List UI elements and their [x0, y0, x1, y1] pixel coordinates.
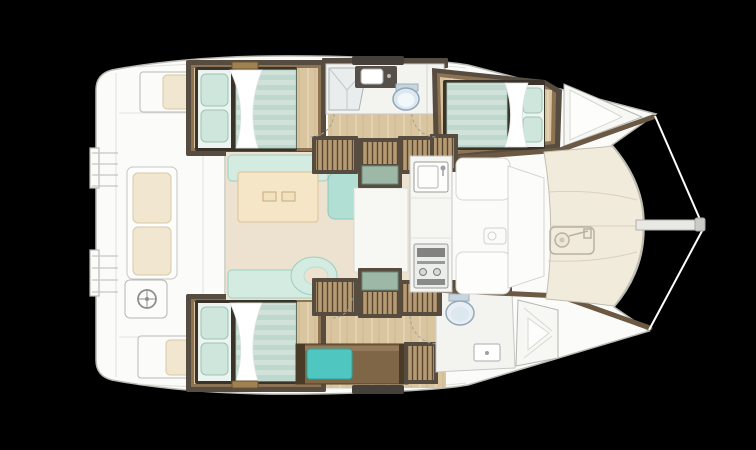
landing-hatch	[362, 292, 398, 314]
center-walkway	[354, 188, 408, 272]
aft-port-cabin	[186, 60, 326, 156]
cockpit-bench-cushion-1	[133, 173, 171, 223]
sink-icon	[474, 344, 500, 361]
landing-hatch	[362, 142, 398, 164]
pillow	[201, 307, 228, 339]
stove-icon	[414, 244, 448, 288]
pillow	[201, 110, 228, 142]
pillow	[201, 343, 228, 375]
roof-hatch	[232, 381, 258, 388]
forward-seat-starboard	[456, 252, 510, 294]
roof-hatch	[352, 56, 404, 65]
landing-pane	[362, 272, 398, 290]
deck-plan-svg	[0, 0, 756, 450]
swim-platform-port	[90, 148, 99, 188]
corridor-bench	[296, 344, 408, 384]
roof-hatch	[232, 62, 258, 69]
roof-hatch	[352, 385, 404, 394]
bowsprit-tip	[695, 218, 705, 231]
steps-hatch	[316, 140, 354, 170]
forward-seat-port	[456, 158, 510, 200]
swim-platform-starboard	[90, 250, 99, 296]
corridor-wardrobe	[404, 342, 438, 384]
landing-pane	[362, 166, 398, 184]
starboard-bow-locker	[516, 300, 558, 366]
table-latch	[282, 192, 295, 201]
foredeck	[544, 146, 643, 306]
sink-icon	[414, 162, 448, 192]
pillow	[523, 117, 542, 142]
helm-wheel-icon	[138, 290, 156, 308]
cockpit-seat-port-cushion	[163, 75, 190, 109]
bench-teal-cushion	[307, 349, 352, 379]
forward-seat-back	[508, 166, 544, 288]
port-bathroom	[322, 58, 448, 114]
bowsprit	[636, 220, 698, 230]
toilet-icon	[393, 84, 419, 110]
table-latch	[263, 192, 276, 201]
pillow	[201, 74, 228, 106]
steps-hatch	[316, 282, 354, 312]
bench-end	[296, 344, 305, 384]
galley	[410, 156, 452, 292]
sink-icon	[355, 66, 397, 88]
catamaran-deck-plan	[0, 0, 756, 450]
pillow	[523, 88, 542, 113]
saloon-table	[238, 172, 318, 222]
cockpit-bench-cushion-2	[133, 227, 171, 275]
